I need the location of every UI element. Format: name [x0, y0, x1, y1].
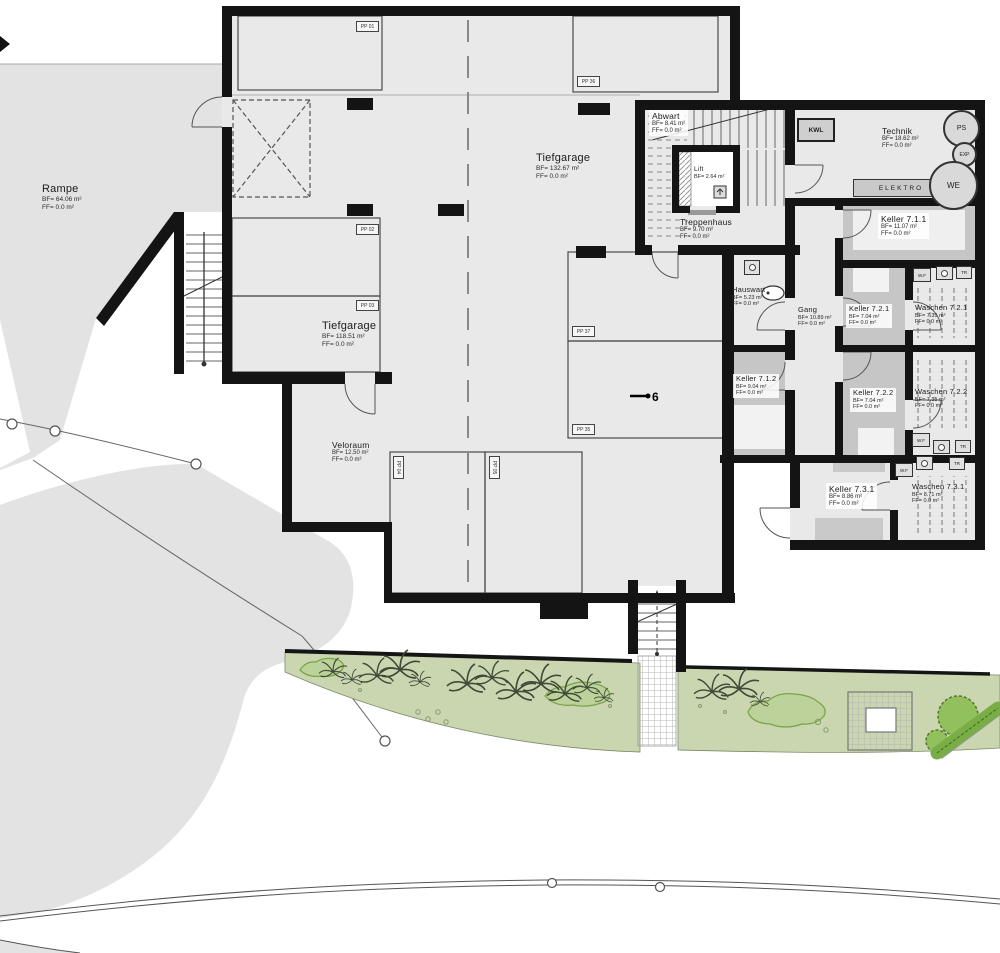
room-label-gang: Gang BF= 10.89 m² FF= 0.0 m²: [798, 306, 831, 328]
room-label-technik: Technik BF= 18.62 m² FF= 0.0 m²: [882, 126, 919, 150]
room-label-tiefgarage-main: Tiefgarage BF= 132.67 m² FF= 0.0 m²: [536, 152, 590, 180]
parking-tag-pp03: PP 03: [356, 300, 379, 311]
room-label-hauswart: Hauswart BF= 5.23 m² FF= 0.0 m²: [732, 286, 765, 308]
parking-tag-pp05: PP 05: [489, 456, 500, 479]
room-label-keller-711: Keller 7.1.1 BF= 11.07 m² FF= 0.0 m²: [878, 213, 929, 239]
paved-pad: [848, 692, 912, 750]
tr-box: TR: [955, 440, 971, 453]
we-tank: WE: [929, 161, 978, 210]
floor-plan: 6: [0, 0, 1000, 953]
plan-graphics: 6: [0, 0, 1000, 953]
washer-icon: [916, 456, 933, 470]
parking-tag-pp02: PP 02: [356, 224, 379, 235]
parking-tag-pp37: PP 37: [572, 326, 595, 337]
wf-box: W.F: [913, 268, 931, 282]
room-label-keller-731: Keller 7.3.1 BF= 8.86 m² FF= 0.0 m²: [826, 483, 877, 509]
room-label-waschen-731: Waschen 7.3.1 BF= 8.71 m² FF= 0.0 m²: [912, 483, 964, 505]
room-label-keller-721: Keller 7.2.1 BF= 7.04 m² FF= 0.0 m²: [846, 304, 892, 328]
wf-box: W.F: [895, 463, 913, 477]
room-label-tiefgarage-left: Tiefgarage BF= 118.51 m² FF= 0.0 m²: [322, 320, 376, 348]
parking-tag-pp36: PP 36: [577, 76, 600, 87]
sink-icon: [744, 260, 760, 275]
parking-tag-pp35: PP 35: [572, 424, 595, 435]
washer-icon: [933, 440, 950, 454]
wc-icon: [762, 286, 784, 300]
room-label-lift: Lift BF= 2.64 m²: [694, 166, 724, 180]
room-label-waschen-721: Waschen 7.2.1 BF= 7.35 m² FF= 0.0 m²: [915, 304, 967, 326]
svg-text:6: 6: [652, 390, 659, 404]
room-label-abwart: Abwart BF= 8.41 m² FF= 0.0 m²: [649, 110, 688, 136]
room-label-treppenhaus: Treppenhaus BF= 9.70 m² FF= 0.0 m²: [680, 217, 732, 241]
washer-icon: [936, 266, 953, 280]
tr-box: TR: [956, 266, 972, 279]
parking-tag-pp04: PP 04: [393, 456, 404, 479]
room-label-veloraum: Veloraum BF= 12.50 m² FF= 0.0 m²: [332, 440, 370, 464]
kwl-unit: KWL: [797, 118, 835, 142]
room-label-waschen-722: Waschen 7.2.2 BF= 7.35 m² FF= 0.0 m²: [915, 388, 967, 410]
parking-tag-pp01: PP 01: [356, 21, 379, 32]
lift-shaft: [679, 152, 733, 215]
room-label-keller-712: Keller 7.1.2 BF= 9.04 m² FF= 0.0 m²: [733, 374, 779, 398]
room-label-rampe: Rampe BF= 64.06 m² FF= 0.0 m²: [42, 183, 82, 211]
room-name: Rampe: [42, 183, 82, 196]
room-label-keller-722: Keller 7.2.2 BF= 7.04 m² FF= 0.0 m²: [850, 388, 896, 412]
tr-box: TR: [949, 457, 965, 470]
wf-box: W.F: [912, 433, 930, 447]
